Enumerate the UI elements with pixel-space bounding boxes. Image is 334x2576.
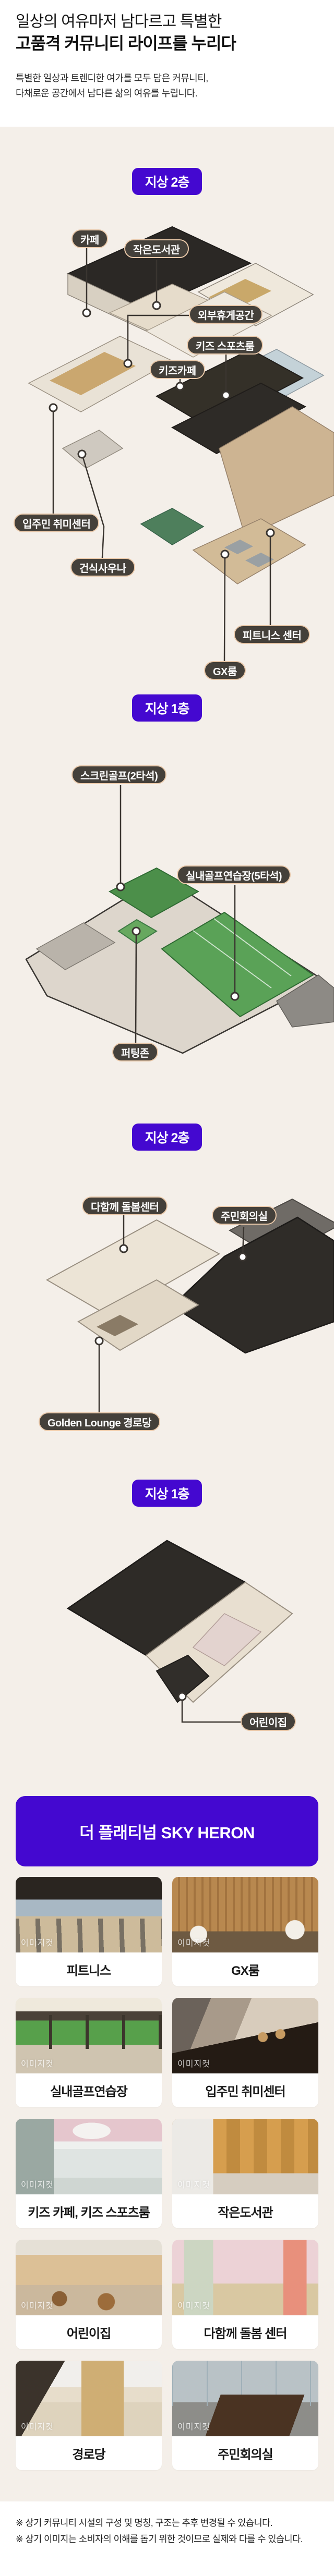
disclaimer-note-2: ※ 상기 이미지는 소비자의 이해를 돕기 위한 것이므로 실제와 다를 수 있… bbox=[16, 2532, 318, 2546]
facility-photo-small-library: 이미지컷 bbox=[172, 2119, 318, 2194]
floor-badge-1f-daycare: 지상 1층 bbox=[132, 1480, 202, 1507]
callout-kids-sports-room: 키즈 스포츠룸 bbox=[187, 336, 263, 355]
facility-photo-kids-cafe-sports: 이미지컷 bbox=[16, 2119, 162, 2194]
facility-card-indoor-golf: 이미지컷 실내골프연습장 bbox=[16, 1998, 162, 2107]
image-cut-watermark: 이미지컷 bbox=[177, 2178, 210, 2190]
facility-caption: 경로당 bbox=[16, 2436, 162, 2470]
facility-card-senior-center: 이미지컷 경로당 bbox=[16, 2361, 162, 2470]
callout-cafe: 카페 bbox=[71, 229, 108, 248]
image-cut-watermark: 이미지컷 bbox=[21, 1936, 54, 1948]
facility-photo-together-care: 이미지컷 bbox=[172, 2240, 318, 2315]
page-subtitle-line2: 다채로운 공간에서 남다른 삶의 여유를 누립니다. bbox=[16, 88, 197, 99]
facility-caption: 피트니스 bbox=[16, 1952, 162, 1986]
page-title-line1: 일상의 여유마저 남다르고 특별한 bbox=[16, 8, 221, 31]
floor-badge-2f-upper: 지상 2층 bbox=[132, 168, 202, 195]
floorplan-2f-community bbox=[0, 224, 334, 693]
facility-card-fitness: 이미지컷 피트니스 bbox=[16, 1877, 162, 1986]
page-subtitle-line1: 특별한 일상과 트렌디한 여가를 모두 담은 커뮤니티, bbox=[16, 73, 208, 83]
disclaimer-notes: ※ 상기 커뮤니티 시설의 구성 및 명칭, 구조는 추후 변경될 수 있습니다… bbox=[16, 2516, 318, 2548]
floorplan-1f-daycare bbox=[0, 1530, 334, 1739]
facility-photo-gx-room: 이미지컷 bbox=[172, 1877, 318, 1952]
facility-card-hobby-center: 이미지컷 입주민 취미센터 bbox=[172, 1998, 318, 2107]
facility-photo-fitness: 이미지컷 bbox=[16, 1877, 162, 1952]
image-cut-watermark: 이미지컷 bbox=[21, 2178, 54, 2190]
callout-dry-sauna: 건식사우나 bbox=[70, 558, 135, 577]
brand-banner-title: 더 플래티넘 SKY HERON bbox=[79, 1820, 255, 1843]
facility-photo-daycare: 이미지컷 bbox=[16, 2240, 162, 2315]
facility-caption: 작은도서관 bbox=[172, 2194, 318, 2228]
callout-screen-golf: 스크린골프(2타석) bbox=[71, 765, 166, 784]
image-cut-watermark: 이미지컷 bbox=[177, 2420, 210, 2432]
facility-card-meeting-room: 이미지컷 주민회의실 bbox=[172, 2361, 318, 2470]
facility-card-gx-room: 이미지컷 GX룸 bbox=[172, 1877, 318, 1986]
callout-fitness-center: 피트니스 센터 bbox=[234, 625, 310, 644]
facility-caption: 주민회의실 bbox=[172, 2436, 318, 2470]
floor-badge-2f-care: 지상 2층 bbox=[132, 1124, 202, 1151]
facility-photo-meeting-room: 이미지컷 bbox=[172, 2361, 318, 2436]
facility-caption: 다함께 돌봄 센터 bbox=[172, 2315, 318, 2349]
floor-badge-1f-golf: 지상 1층 bbox=[132, 694, 202, 722]
facility-card-small-library: 이미지컷 작은도서관 bbox=[172, 2119, 318, 2228]
image-cut-watermark: 이미지컷 bbox=[177, 2299, 210, 2311]
image-cut-watermark: 이미지컷 bbox=[21, 2299, 54, 2311]
image-cut-watermark: 이미지컷 bbox=[21, 2057, 54, 2069]
facility-photo-hobby-center: 이미지컷 bbox=[172, 1998, 318, 2073]
image-cut-watermark: 이미지컷 bbox=[177, 1936, 210, 1948]
callout-putting-zone: 퍼팅존 bbox=[112, 1043, 158, 1061]
facility-card-daycare: 이미지컷 어린이집 bbox=[16, 2240, 162, 2349]
floorplan-1f-golf bbox=[0, 751, 334, 1074]
image-cut-watermark: 이미지컷 bbox=[177, 2057, 210, 2069]
callout-golden-lounge-senior-center: Golden Lounge 경로당 bbox=[39, 1412, 160, 1431]
page: 일상의 여유마저 남다르고 특별한 고품격 커뮤니티 라이프를 누리다 특별한 … bbox=[0, 0, 334, 2576]
callout-small-library: 작은도서관 bbox=[124, 239, 189, 258]
facility-card-together-care: 이미지컷 다함께 돌봄 센터 bbox=[172, 2240, 318, 2349]
facility-card-kids-cafe-sports: 이미지컷 키즈 카페, 키즈 스포츠룸 bbox=[16, 2119, 162, 2228]
callout-indoor-golf-range: 실내골프연습장(5타석) bbox=[177, 865, 291, 884]
callout-resident-meeting-room: 주민회의실 bbox=[212, 1206, 277, 1225]
callout-gx-room: GX룸 bbox=[204, 661, 246, 680]
facility-caption: 입주민 취미센터 bbox=[172, 2073, 318, 2107]
brand-banner: 더 플래티넘 SKY HERON bbox=[16, 1796, 318, 1866]
callout-resident-hobby-center: 입주민 취미센터 bbox=[14, 514, 99, 532]
disclaimer-note-1: ※ 상기 커뮤니티 시설의 구성 및 명칭, 구조는 추후 변경될 수 있습니다… bbox=[16, 2516, 318, 2530]
page-title-line2: 고품격 커뮤니티 라이프를 누리다 bbox=[16, 30, 236, 54]
callout-outdoor-rest-area: 외부휴게공간 bbox=[189, 305, 263, 324]
facility-caption: GX룸 bbox=[172, 1952, 318, 1986]
callout-kids-cafe: 키즈카페 bbox=[150, 360, 205, 379]
facility-caption: 키즈 카페, 키즈 스포츠룸 bbox=[16, 2194, 162, 2228]
facility-caption: 어린이집 bbox=[16, 2315, 162, 2349]
image-cut-watermark: 이미지컷 bbox=[21, 2420, 54, 2432]
floorplan-2f-care bbox=[0, 1170, 334, 1442]
facility-photo-indoor-golf: 이미지컷 bbox=[16, 1998, 162, 2073]
page-subtitle: 특별한 일상과 트렌디한 여가를 모두 담은 커뮤니티, 다채로운 공간에서 남… bbox=[16, 71, 208, 101]
facility-caption: 실내골프연습장 bbox=[16, 2073, 162, 2107]
facility-photo-senior-center: 이미지컷 bbox=[16, 2361, 162, 2436]
callout-daycare-center: 어린이집 bbox=[241, 1712, 296, 1731]
callout-together-care-center: 다함께 돌봄센터 bbox=[82, 1197, 168, 1215]
